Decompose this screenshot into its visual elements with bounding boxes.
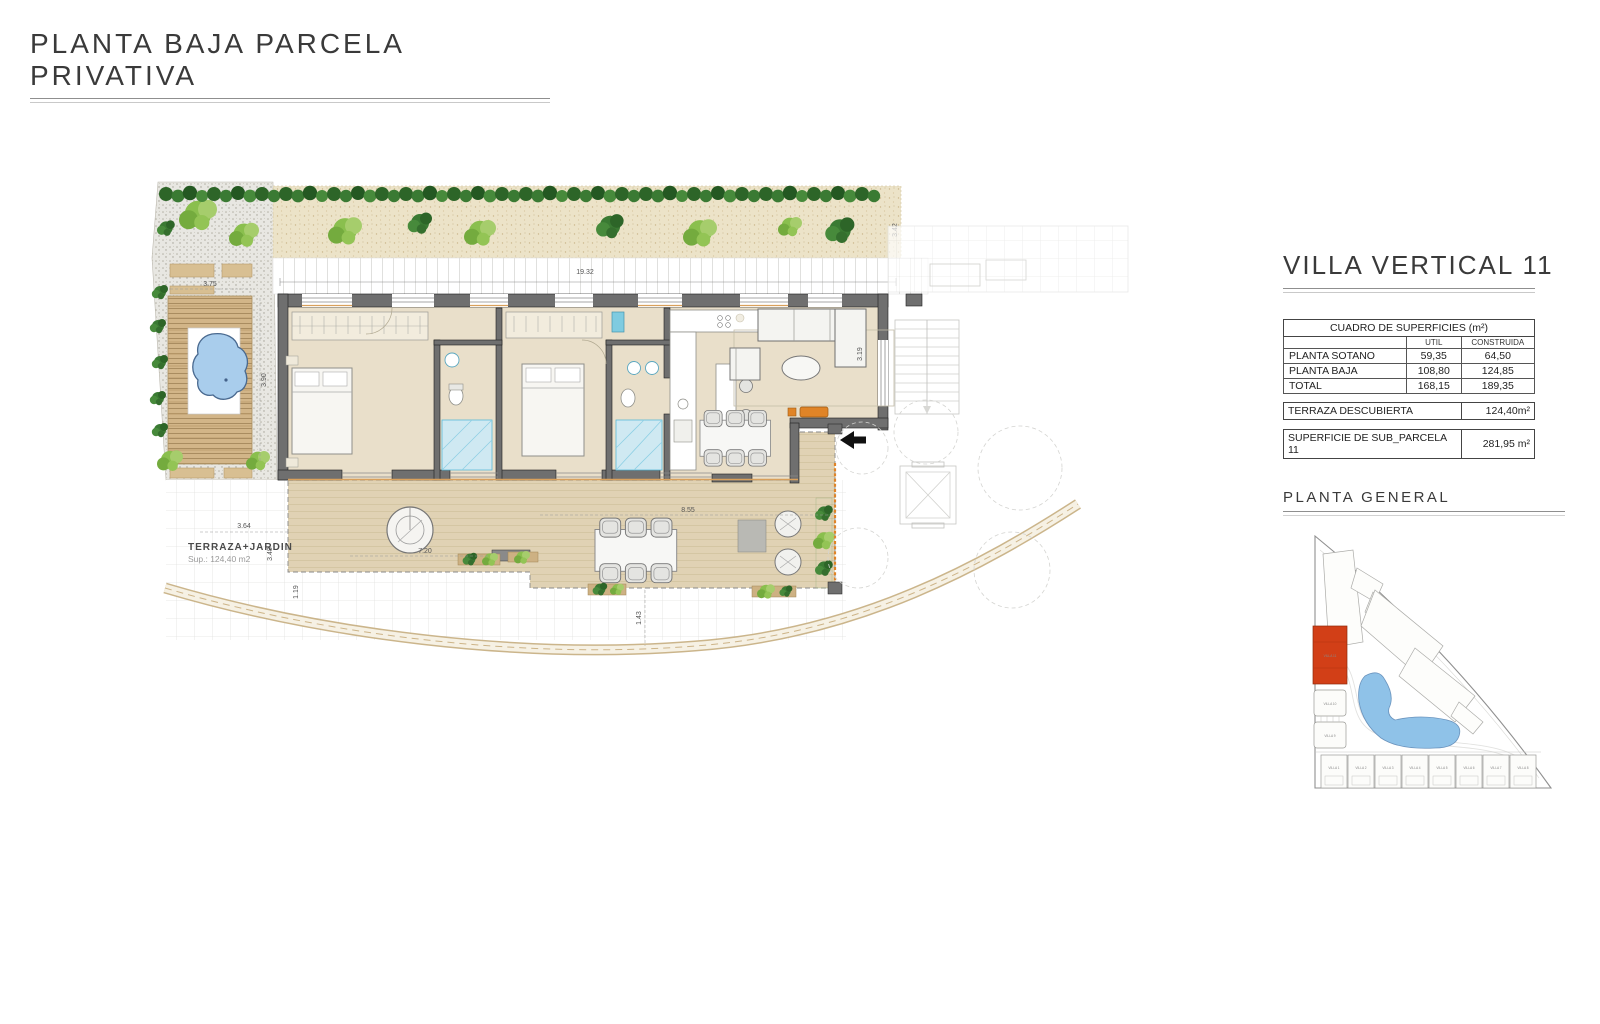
gravel-garden bbox=[150, 182, 277, 480]
row-label: PLANTA BAJA bbox=[1284, 364, 1407, 379]
outdoor-dining-set bbox=[595, 518, 677, 583]
dim-terrace-h: 3.48 bbox=[267, 547, 274, 561]
site-villa-label: VILLA 5 bbox=[1436, 766, 1447, 770]
villa-title: VILLA VERTICAL 11 bbox=[1283, 250, 1535, 281]
site-highlight-villa: VILLA 11 bbox=[1313, 626, 1347, 684]
table-row: PLANTA BAJA 108,80 124,85 bbox=[1284, 364, 1535, 379]
site-villa-row bbox=[1315, 752, 1541, 788]
dim-deck-h: 3.90 bbox=[261, 373, 268, 387]
site-villa-label: VILLA 1 bbox=[1328, 766, 1339, 770]
site-villa-label: VILLA 7 bbox=[1490, 766, 1501, 770]
terrace-sup: Sup.: 124,40 m2 bbox=[188, 554, 251, 564]
dim-terrace-w: 3.64 bbox=[237, 523, 251, 530]
page-title-text: PLANTA BAJA PARCELA PRIVATIVA bbox=[30, 28, 403, 91]
table-row: PLANTA SOTANO 59,35 64,50 bbox=[1284, 349, 1535, 364]
superficie-label: SUPERFICIE DE SUB_PARCELA 11 bbox=[1284, 430, 1462, 459]
house bbox=[278, 294, 922, 599]
page-title-rule bbox=[30, 98, 550, 103]
site-villa-label: VILLA 4 bbox=[1409, 766, 1420, 770]
site-villa-label: VILLA 6 bbox=[1463, 766, 1474, 770]
floor-plan-area: 19.32 3.42 3.75 3.90 bbox=[140, 168, 1150, 688]
row-util: 59,35 bbox=[1406, 349, 1461, 364]
dim-living: 3.19 bbox=[857, 347, 864, 361]
floor-plan: 19.32 3.42 3.75 3.90 bbox=[140, 168, 1150, 688]
row-label: TOTAL bbox=[1284, 379, 1407, 394]
col-construida: CONSTRUIDA bbox=[1461, 337, 1534, 349]
surface-table: CUADRO DE SUPERFICIES (m²) UTIL CONSTRUI… bbox=[1283, 319, 1535, 394]
surface-table-subheader: UTIL CONSTRUIDA bbox=[1284, 337, 1535, 349]
page-title: PLANTA BAJA PARCELA PRIVATIVA bbox=[30, 28, 570, 103]
dim-left-terrace: 7.20 bbox=[418, 548, 432, 555]
row-construida: 189,35 bbox=[1461, 379, 1534, 394]
stairs bbox=[895, 320, 959, 414]
site-villa11-label: VILLA 11 bbox=[1324, 654, 1337, 658]
villa-title-rule bbox=[1283, 288, 1535, 293]
row-util: 108,80 bbox=[1406, 364, 1461, 379]
surface-table-title: CUADRO DE SUPERFICIES (m²) bbox=[1284, 320, 1535, 337]
site-plan-rule bbox=[1283, 511, 1565, 516]
site-villa-label: VILLA 2 bbox=[1355, 766, 1366, 770]
pool-deck bbox=[168, 296, 252, 464]
superficie-value: 281,95 m² bbox=[1462, 430, 1535, 459]
terraza-label: TERRAZA DESCUBIERTA bbox=[1284, 403, 1462, 420]
outdoor-mat bbox=[738, 520, 766, 552]
row-construida: 124,85 bbox=[1461, 364, 1534, 379]
dim-right-terrace: 8.55 bbox=[681, 507, 695, 514]
dim-top: 19.32 bbox=[576, 269, 594, 276]
col-util: UTIL bbox=[1406, 337, 1461, 349]
site-villa-label: VILLA 8 bbox=[1517, 766, 1528, 770]
row-util: 168,15 bbox=[1406, 379, 1461, 394]
site-plan: VILLA 11 VILLA 10 VILLA 9 VILLA 1 VILLA … bbox=[1283, 526, 1563, 796]
entrance-arrow bbox=[840, 431, 866, 449]
terrace-label: TERRAZA+JARDIN bbox=[188, 542, 293, 553]
superficie-table: SUPERFICIE DE SUB_PARCELA 11 281,95 m² bbox=[1283, 429, 1535, 459]
hanging-chair bbox=[387, 507, 433, 553]
info-panel: VILLA VERTICAL 11 CUADRO DE SUPERFICIES … bbox=[1283, 250, 1535, 801]
dim-path: 1.43 bbox=[636, 611, 643, 625]
elevator bbox=[900, 462, 956, 528]
dim-gap: 1.19 bbox=[293, 585, 300, 599]
sideboard bbox=[800, 407, 828, 417]
terraza-value: 124,40m² bbox=[1462, 403, 1535, 420]
table-row: TOTAL 168,15 189,35 bbox=[1284, 379, 1535, 394]
site-plan-title: PLANTA GENERAL bbox=[1283, 489, 1535, 506]
site-villa-label: VILLA 10 bbox=[1324, 702, 1337, 706]
row-label: PLANTA SOTANO bbox=[1284, 349, 1407, 364]
site-villa-label: VILLA 9 bbox=[1324, 734, 1335, 738]
terraza-table: TERRAZA DESCUBIERTA 124,40m² bbox=[1283, 402, 1535, 420]
dim-deck-w: 3.75 bbox=[203, 281, 217, 288]
site-villa-label: VILLA 3 bbox=[1382, 766, 1393, 770]
indoor-dining-set bbox=[700, 410, 771, 466]
row-construida: 64,50 bbox=[1461, 349, 1534, 364]
